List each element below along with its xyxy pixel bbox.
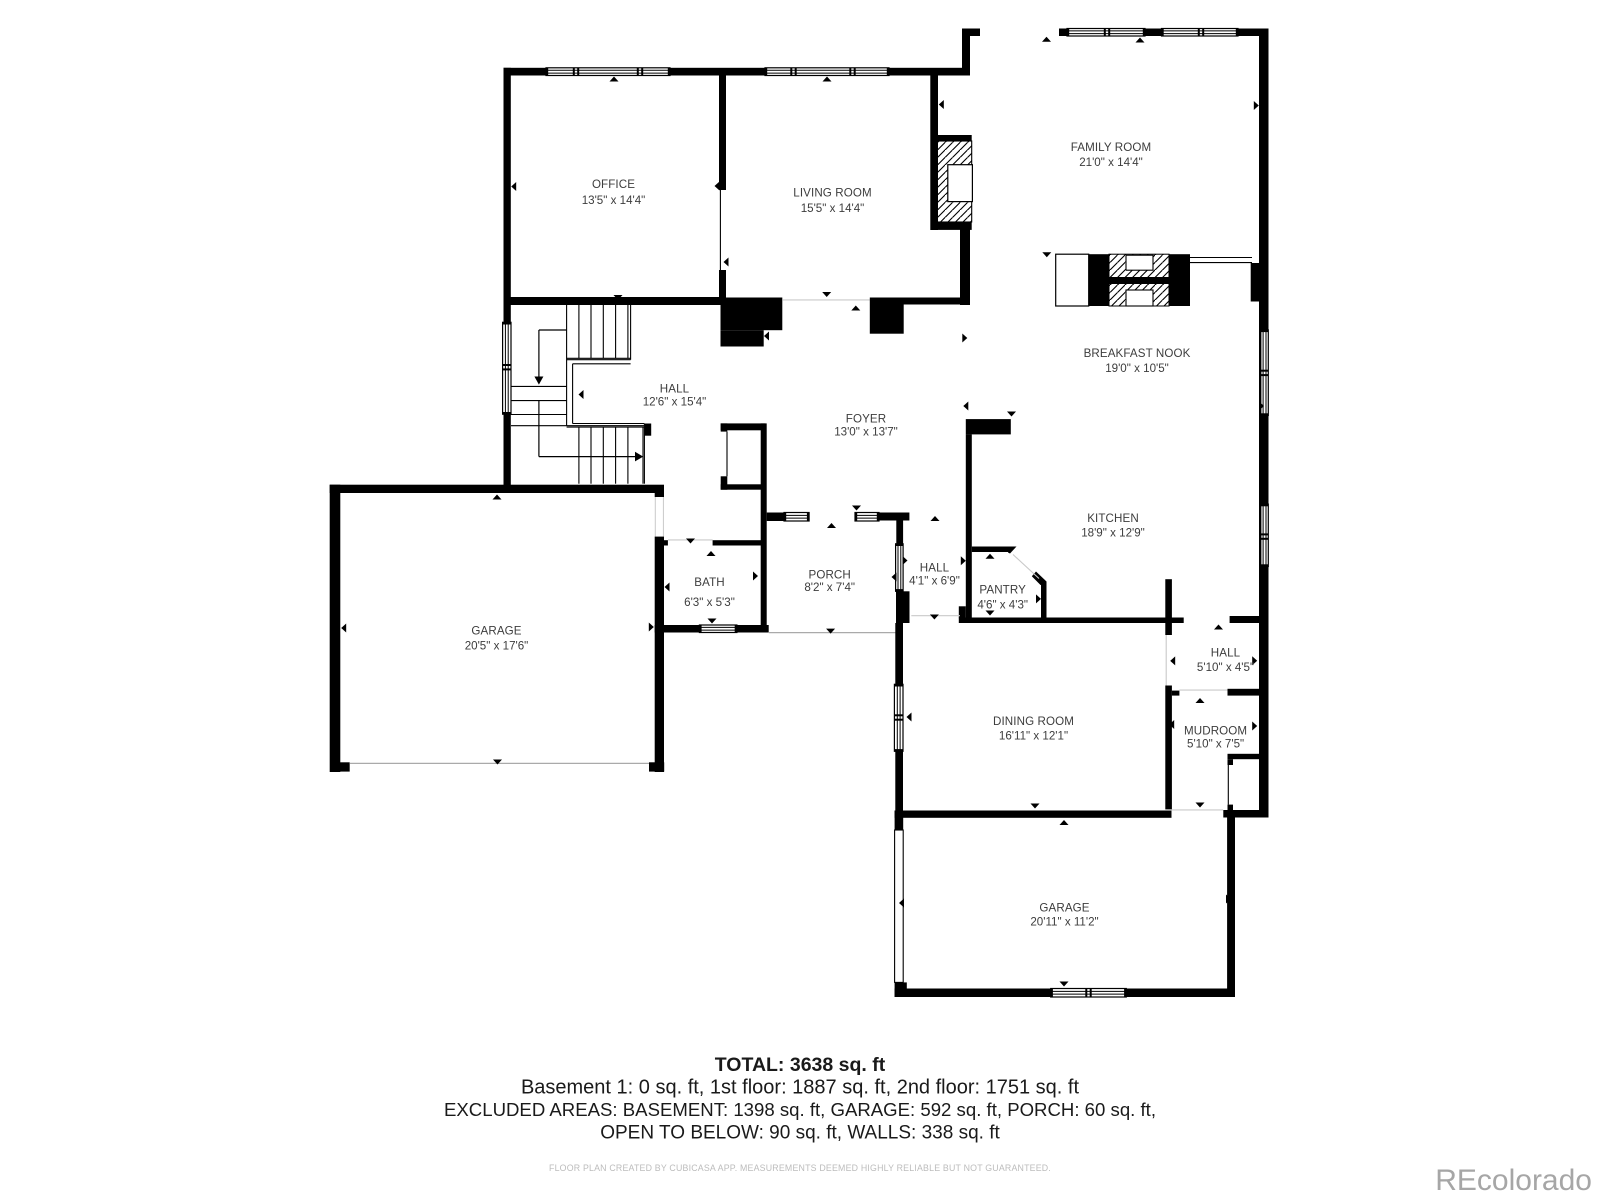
- svg-text:16'11" x 12'1": 16'11" x 12'1": [999, 730, 1068, 743]
- svg-text:Basement 1: 0 sq. ft, 1st floo: Basement 1: 0 sq. ft, 1st floor: 1887 sq…: [521, 1077, 1080, 1099]
- svg-text:HALL: HALL: [920, 562, 950, 575]
- svg-text:TOTAL: 3638 sq. ft: TOTAL: 3638 sq. ft: [715, 1054, 886, 1076]
- svg-text:OPEN TO BELOW: 90 sq. ft, WALL: OPEN TO BELOW: 90 sq. ft, WALLS: 338 sq.…: [600, 1123, 1000, 1144]
- svg-text:18'9" x 12'9": 18'9" x 12'9": [1081, 527, 1145, 540]
- svg-text:GARAGE: GARAGE: [471, 624, 521, 637]
- svg-text:EXCLUDED AREAS: BASEMENT: 1398: EXCLUDED AREAS: BASEMENT: 1398 sq. ft, G…: [444, 1099, 1156, 1120]
- svg-text:20'11" x 11'2": 20'11" x 11'2": [1030, 916, 1098, 929]
- svg-text:PANTRY: PANTRY: [979, 584, 1026, 597]
- svg-text:4'1" x 6'9": 4'1" x 6'9": [909, 574, 960, 587]
- svg-text:KITCHEN: KITCHEN: [1087, 512, 1139, 525]
- svg-text:BATH: BATH: [694, 576, 724, 589]
- svg-text:5'10" x 4'5": 5'10" x 4'5": [1197, 661, 1254, 674]
- svg-text:19'0" x 10'5": 19'0" x 10'5": [1105, 362, 1169, 375]
- svg-text:13'0" x 13'7": 13'0" x 13'7": [834, 426, 898, 439]
- svg-text:REcolorado: REcolorado: [1435, 1164, 1592, 1197]
- svg-text:LIVING ROOM: LIVING ROOM: [793, 187, 871, 200]
- svg-text:HALL: HALL: [1211, 647, 1241, 660]
- svg-text:12'6" x 15'4": 12'6" x 15'4": [643, 396, 707, 409]
- svg-text:PORCH: PORCH: [809, 569, 851, 582]
- svg-text:GARAGE: GARAGE: [1039, 901, 1089, 914]
- svg-text:8'2" x 7'4": 8'2" x 7'4": [804, 581, 855, 594]
- svg-text:20'5" x 17'6": 20'5" x 17'6": [465, 640, 529, 653]
- svg-text:FOYER: FOYER: [846, 413, 886, 426]
- svg-text:FAMILY ROOM: FAMILY ROOM: [1071, 141, 1152, 154]
- svg-text:BREAKFAST NOOK: BREAKFAST NOOK: [1084, 347, 1191, 360]
- svg-text:FLOOR PLAN CREATED BY CUBICASA: FLOOR PLAN CREATED BY CUBICASA APP. MEAS…: [549, 1163, 1051, 1173]
- svg-text:4'6" x 4'3": 4'6" x 4'3": [977, 598, 1028, 611]
- svg-text:13'5" x 14'4": 13'5" x 14'4": [582, 194, 646, 207]
- svg-text:15'5" x 14'4": 15'5" x 14'4": [801, 202, 865, 215]
- svg-text:MUDROOM: MUDROOM: [1184, 725, 1247, 738]
- svg-text:DINING ROOM: DINING ROOM: [993, 715, 1074, 728]
- svg-text:21'0" x 14'4": 21'0" x 14'4": [1079, 156, 1143, 169]
- svg-text:5'10" x 7'5": 5'10" x 7'5": [1187, 738, 1244, 751]
- svg-text:HALL: HALL: [660, 383, 690, 396]
- svg-text:OFFICE: OFFICE: [592, 178, 635, 191]
- svg-text:6'3" x 5'3": 6'3" x 5'3": [684, 596, 735, 609]
